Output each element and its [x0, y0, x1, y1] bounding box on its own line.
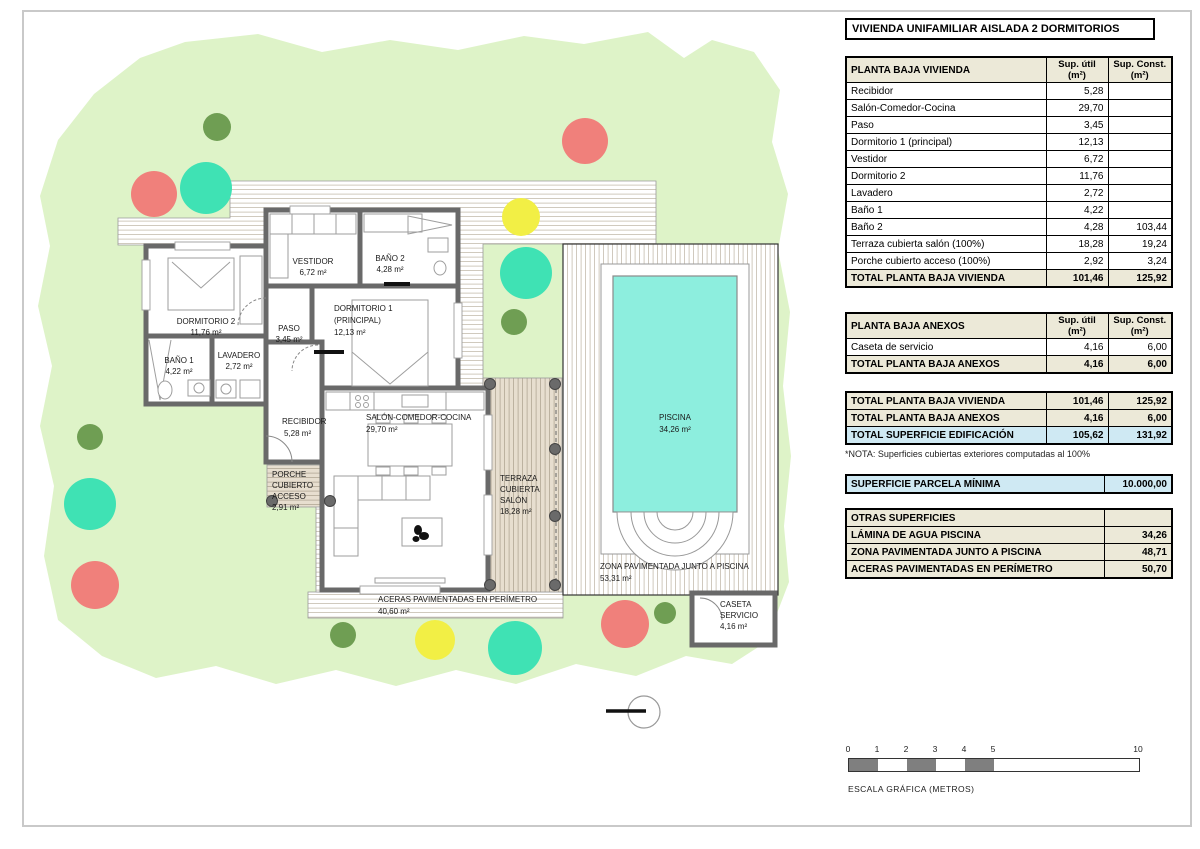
column-header: Sup. útil(m²) [1046, 57, 1108, 83]
table-row: SUPERFICIE PARCELA MÍNIMA 10.000,00 [846, 475, 1172, 493]
table-row: ZONA PAVIMENTADA JUNTO A PISCINA48,71 [846, 544, 1172, 561]
table-parcela-minima: SUPERFICIE PARCELA MÍNIMA 10.000,00 [845, 474, 1173, 494]
table-otras-superficies: OTRAS SUPERFICIES LÁMINA DE AGUA PISCINA… [845, 508, 1173, 579]
column-header: Sup. Const.(m²) [1108, 313, 1172, 339]
table-row: Dormitorio 211,76 [846, 168, 1172, 185]
table-row: Baño 24,28103,44 [846, 219, 1172, 236]
table-planta-baja-anexos: PLANTA BAJA ANEXOS Sup. útil(m²) Sup. Co… [845, 312, 1173, 374]
scale-tick: 0 [846, 744, 851, 754]
nota-text: *NOTA: Superficies cubiertas exteriores … [845, 449, 1090, 459]
table-resumen: TOTAL PLANTA BAJA VIVIENDA101,46125,92 T… [845, 391, 1173, 445]
table-header-row: PLANTA BAJA VIVIENDA Sup. útil(m²) Sup. … [846, 57, 1172, 83]
data-panel: VIVIENDA UNIFAMILIAR AISLADA 2 DORMITORI… [845, 0, 1179, 849]
table-row: Recibidor5,28 [846, 83, 1172, 100]
column-header: PLANTA BAJA ANEXOS [846, 313, 1046, 339]
page-title: VIVIENDA UNIFAMILIAR AISLADA 2 DORMITORI… [845, 18, 1155, 40]
scale-tick: 2 [904, 744, 909, 754]
table-row: Salón-Comedor-Cocina29,70 [846, 100, 1172, 117]
table-total-row: TOTAL SUPERFICIE EDIFICACIÓN105,62131,92 [846, 427, 1172, 445]
table-row: Caseta de servicio4,166,00 [846, 339, 1172, 356]
table-row: Baño 14,22 [846, 202, 1172, 219]
scale-tick: 3 [933, 744, 938, 754]
table-row: LÁMINA DE AGUA PISCINA34,26 [846, 527, 1172, 544]
table-row: Dormitorio 1 (principal)12,13 [846, 134, 1172, 151]
table-header-row: OTRAS SUPERFICIES [846, 509, 1172, 527]
table-row: TOTAL PLANTA BAJA ANEXOS4,166,00 [846, 410, 1172, 427]
scale-tick: 4 [962, 744, 967, 754]
column-header: Sup. útil(m²) [1046, 313, 1108, 339]
table-row: ACERAS PAVIMENTADAS EN PERÍMETRO50,70 [846, 561, 1172, 579]
table-row: Terraza cubierta salón (100%)18,2819,24 [846, 236, 1172, 253]
table-row: Lavadero2,72 [846, 185, 1172, 202]
scale-bar: 0 1 2 3 4 5 10 ESCALA GRÁFICA (METROS) [845, 744, 1145, 804]
table-row: Paso3,45 [846, 117, 1172, 134]
table-total-row: TOTAL PLANTA BAJA ANEXOS4,166,00 [846, 356, 1172, 374]
table-planta-baja-vivienda: PLANTA BAJA VIVIENDA Sup. útil(m²) Sup. … [845, 56, 1173, 288]
table-total-row: TOTAL PLANTA BAJA VIVIENDA101,46125,92 [846, 270, 1172, 288]
scale-tick: 1 [875, 744, 880, 754]
table-row: Porche cubierto acceso (100%)2,923,24 [846, 253, 1172, 270]
column-header: PLANTA BAJA VIVIENDA [846, 57, 1046, 83]
column-header: Sup. Const.(m²) [1108, 57, 1172, 83]
scale-tick: 10 [1133, 744, 1142, 754]
table-row: TOTAL PLANTA BAJA VIVIENDA101,46125,92 [846, 392, 1172, 410]
sheet: DORMITORIO 2 11,76 m² BAÑO 1 4,22 m² LAV… [0, 0, 1200, 849]
table-header-row: PLANTA BAJA ANEXOS Sup. útil(m²) Sup. Co… [846, 313, 1172, 339]
scale-bar-label: ESCALA GRÁFICA (METROS) [848, 784, 974, 794]
scale-bar-strip [848, 758, 1140, 772]
table-row: Vestidor6,72 [846, 151, 1172, 168]
scale-tick: 5 [991, 744, 996, 754]
